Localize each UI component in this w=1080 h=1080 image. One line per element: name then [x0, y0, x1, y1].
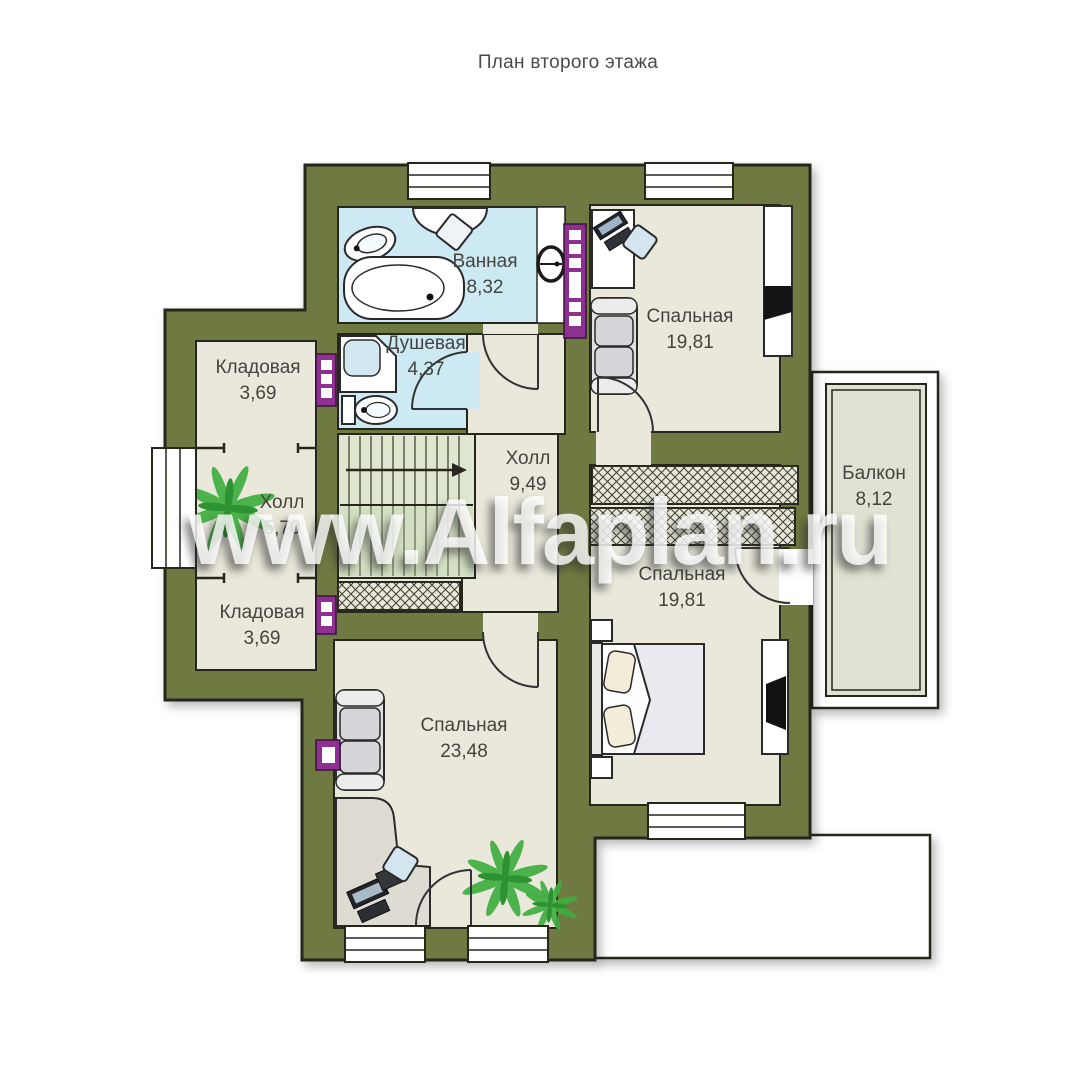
washbasin-icon [538, 247, 564, 281]
nightstand [591, 620, 612, 641]
roof-terrace [595, 835, 930, 958]
room-label-bedroom-1: Спальная19,81 [647, 304, 734, 356]
radiator-icon [564, 224, 586, 338]
wardrobe-band-3 [338, 582, 460, 610]
window-icon [408, 163, 490, 199]
double-bed-icon [591, 643, 704, 755]
room-label-storage-1: Кладовая3,69 [215, 355, 300, 407]
floor-plan-canvas: План второго этажа [0, 0, 1080, 1080]
room-label-bedroom-3: Спальная23,48 [421, 713, 508, 765]
radiator-icon [316, 596, 336, 634]
room-label-shower: Душевая4,37 [386, 331, 465, 383]
radiator-icon [316, 740, 340, 770]
window-icon [468, 926, 548, 962]
nightstand [591, 757, 612, 778]
room-label-storage-2: Кладовая3,69 [219, 600, 304, 652]
window-icon [645, 163, 733, 199]
sofa-icon [336, 690, 384, 790]
window-icon [648, 803, 745, 839]
window-icon [345, 926, 425, 962]
watermark: www.Alfaplan.ru [189, 478, 892, 586]
tv-icon [766, 676, 786, 730]
radiator-icon [316, 354, 336, 406]
bathtub-icon [344, 257, 464, 319]
room-label-bathroom: Ванная8,32 [452, 249, 517, 301]
toilet-icon [342, 396, 397, 424]
wall-niche [764, 206, 792, 356]
